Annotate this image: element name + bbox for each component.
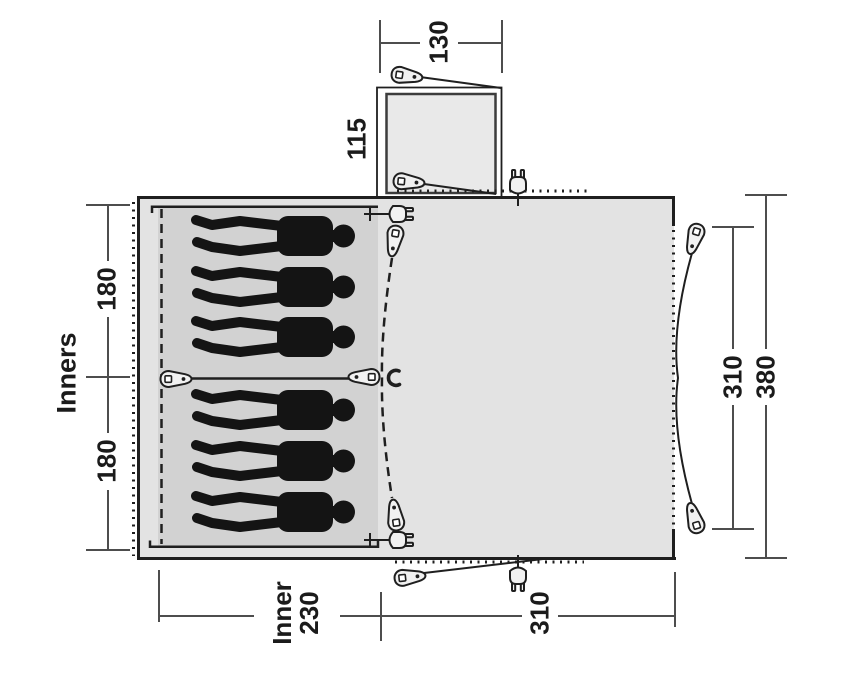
porch-depth-label: 115 [344, 118, 371, 160]
side-total-width-label: 380 [753, 355, 780, 398]
tent-peg-icon [391, 66, 424, 86]
inner-length-word: Inner [269, 581, 296, 645]
porch-width-label: 130 [426, 20, 453, 63]
inners-caption: Inners [54, 332, 81, 413]
floor-plan-drawing [0, 0, 857, 682]
inner-length-label: Inner 230 [269, 581, 323, 645]
tent-floor-plan: 130 115 Inners 180 180 310 380 Inner 230… [0, 0, 857, 682]
side-inner-width-label: 310 [720, 355, 747, 398]
porch-guy-line-top [420, 77, 501, 88]
tent-peg-icon [682, 222, 706, 256]
tent-peg-icon [394, 568, 427, 587]
dim-inner-sections [86, 205, 130, 550]
living-length-label: 310 [527, 591, 554, 634]
section-bottom-label: 180 [94, 439, 121, 482]
section-top-label: 180 [94, 267, 121, 310]
guy-line-right [676, 253, 692, 504]
tent-peg-icon [682, 501, 706, 535]
inner-length-value: 230 [296, 581, 323, 645]
